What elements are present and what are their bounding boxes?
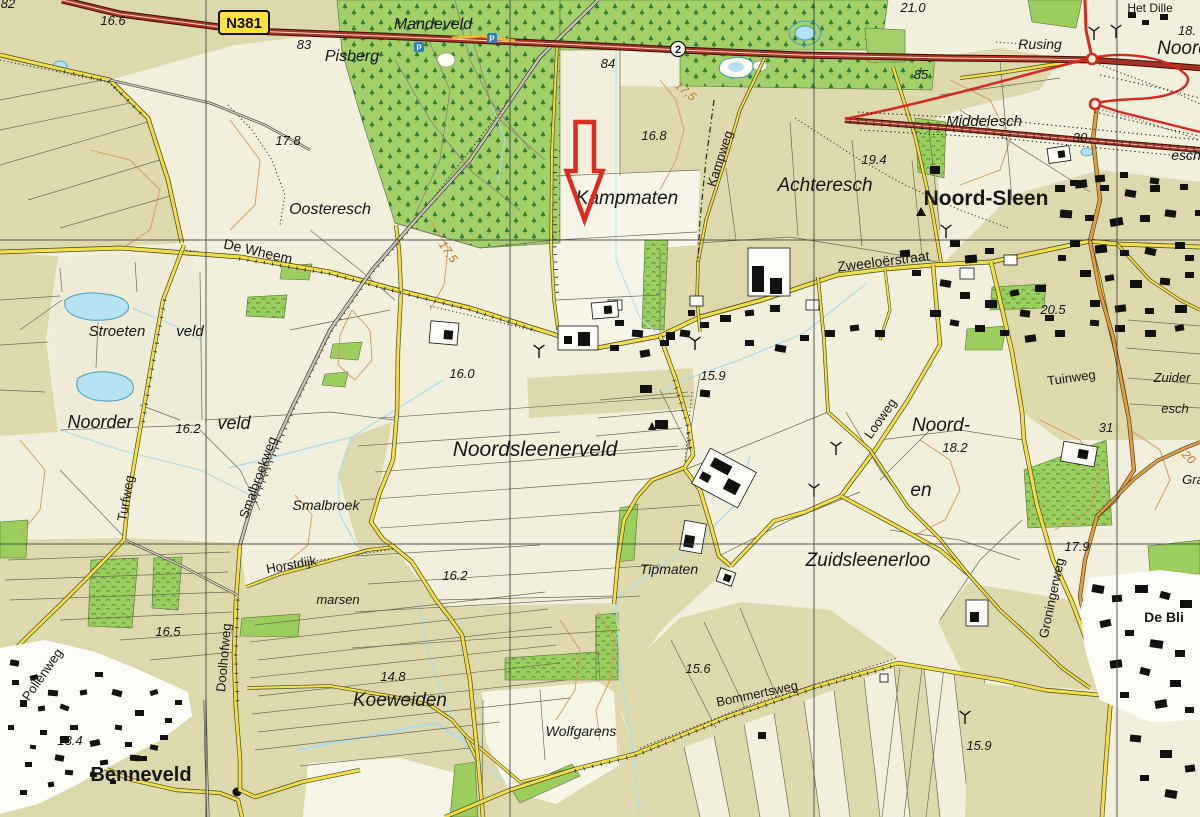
- svg-text:esch: esch: [1171, 147, 1200, 163]
- svg-text:2: 2: [675, 44, 681, 56]
- svg-text:Zuider: Zuider: [1153, 370, 1192, 385]
- svg-text:Tipmaten: Tipmaten: [640, 561, 698, 577]
- svg-text:31: 31: [1099, 420, 1113, 435]
- svg-text:Benneveld: Benneveld: [90, 764, 191, 786]
- svg-text:84: 84: [601, 56, 615, 71]
- svg-text:Noord-: Noord-: [912, 415, 970, 436]
- svg-text:Oosteresch: Oosteresch: [289, 201, 371, 218]
- svg-text:N381: N381: [226, 15, 262, 32]
- svg-text:16.0: 16.0: [449, 366, 475, 381]
- svg-text:P: P: [416, 44, 422, 53]
- svg-text:19.4: 19.4: [861, 152, 886, 167]
- svg-text:De Bli: De Bli: [1144, 609, 1184, 625]
- svg-text:esch: esch: [1161, 401, 1188, 416]
- svg-text:en: en: [910, 480, 931, 501]
- svg-text:14.8: 14.8: [380, 669, 406, 684]
- svg-text:16.5: 16.5: [155, 624, 181, 639]
- svg-text:82: 82: [1, 0, 16, 11]
- svg-text:Noord-Sleen: Noord-Sleen: [924, 187, 1049, 210]
- svg-text:16.8: 16.8: [641, 128, 667, 143]
- svg-text:15.9: 15.9: [966, 738, 991, 753]
- svg-text:Wolfgarens: Wolfgarens: [546, 723, 617, 739]
- svg-text:veld: veld: [176, 323, 204, 340]
- svg-text:Pisberg: Pisberg: [325, 48, 379, 65]
- svg-text:17.9: 17.9: [1064, 539, 1089, 554]
- svg-text:Mandeveld: Mandeveld: [394, 16, 473, 33]
- svg-text:P: P: [489, 35, 495, 44]
- svg-text:Smalbroek: Smalbroek: [293, 497, 361, 513]
- svg-text:16.2: 16.2: [442, 568, 468, 583]
- svg-text:Middelesch: Middelesch: [946, 113, 1022, 130]
- svg-text:16.2: 16.2: [175, 421, 201, 436]
- svg-text:Stroeten: Stroeten: [89, 323, 146, 340]
- svg-text:Noordsleenerveld: Noordsleenerveld: [453, 438, 619, 461]
- svg-text:Noord: Noord: [1157, 38, 1200, 59]
- svg-text:20.5: 20.5: [1039, 302, 1066, 317]
- svg-text:18.4: 18.4: [57, 733, 82, 748]
- svg-text:17.8: 17.8: [275, 133, 301, 148]
- svg-text:18.: 18.: [1178, 23, 1196, 38]
- svg-text:85: 85: [914, 67, 929, 82]
- svg-text:Het Dille: Het Dille: [1127, 1, 1173, 15]
- svg-text:18.2: 18.2: [942, 440, 968, 455]
- svg-text:15.9: 15.9: [700, 368, 725, 383]
- svg-text:21.0: 21.0: [899, 0, 926, 15]
- svg-text:16.6: 16.6: [100, 13, 126, 28]
- svg-text:Gra: Gra: [1182, 472, 1200, 487]
- svg-text:30: 30: [1073, 130, 1088, 145]
- svg-text:veld: veld: [217, 413, 251, 433]
- svg-text:15.6: 15.6: [685, 661, 711, 676]
- svg-text:Zuidsleenerloo: Zuidsleenerloo: [805, 550, 931, 571]
- svg-text:Achteresch: Achteresch: [776, 175, 872, 196]
- svg-text:marsen: marsen: [316, 592, 359, 607]
- svg-text:Rusing: Rusing: [1018, 36, 1062, 52]
- svg-text:Koeweiden: Koeweiden: [353, 690, 447, 711]
- svg-text:83: 83: [297, 37, 312, 52]
- svg-text:Noorder: Noorder: [67, 412, 133, 432]
